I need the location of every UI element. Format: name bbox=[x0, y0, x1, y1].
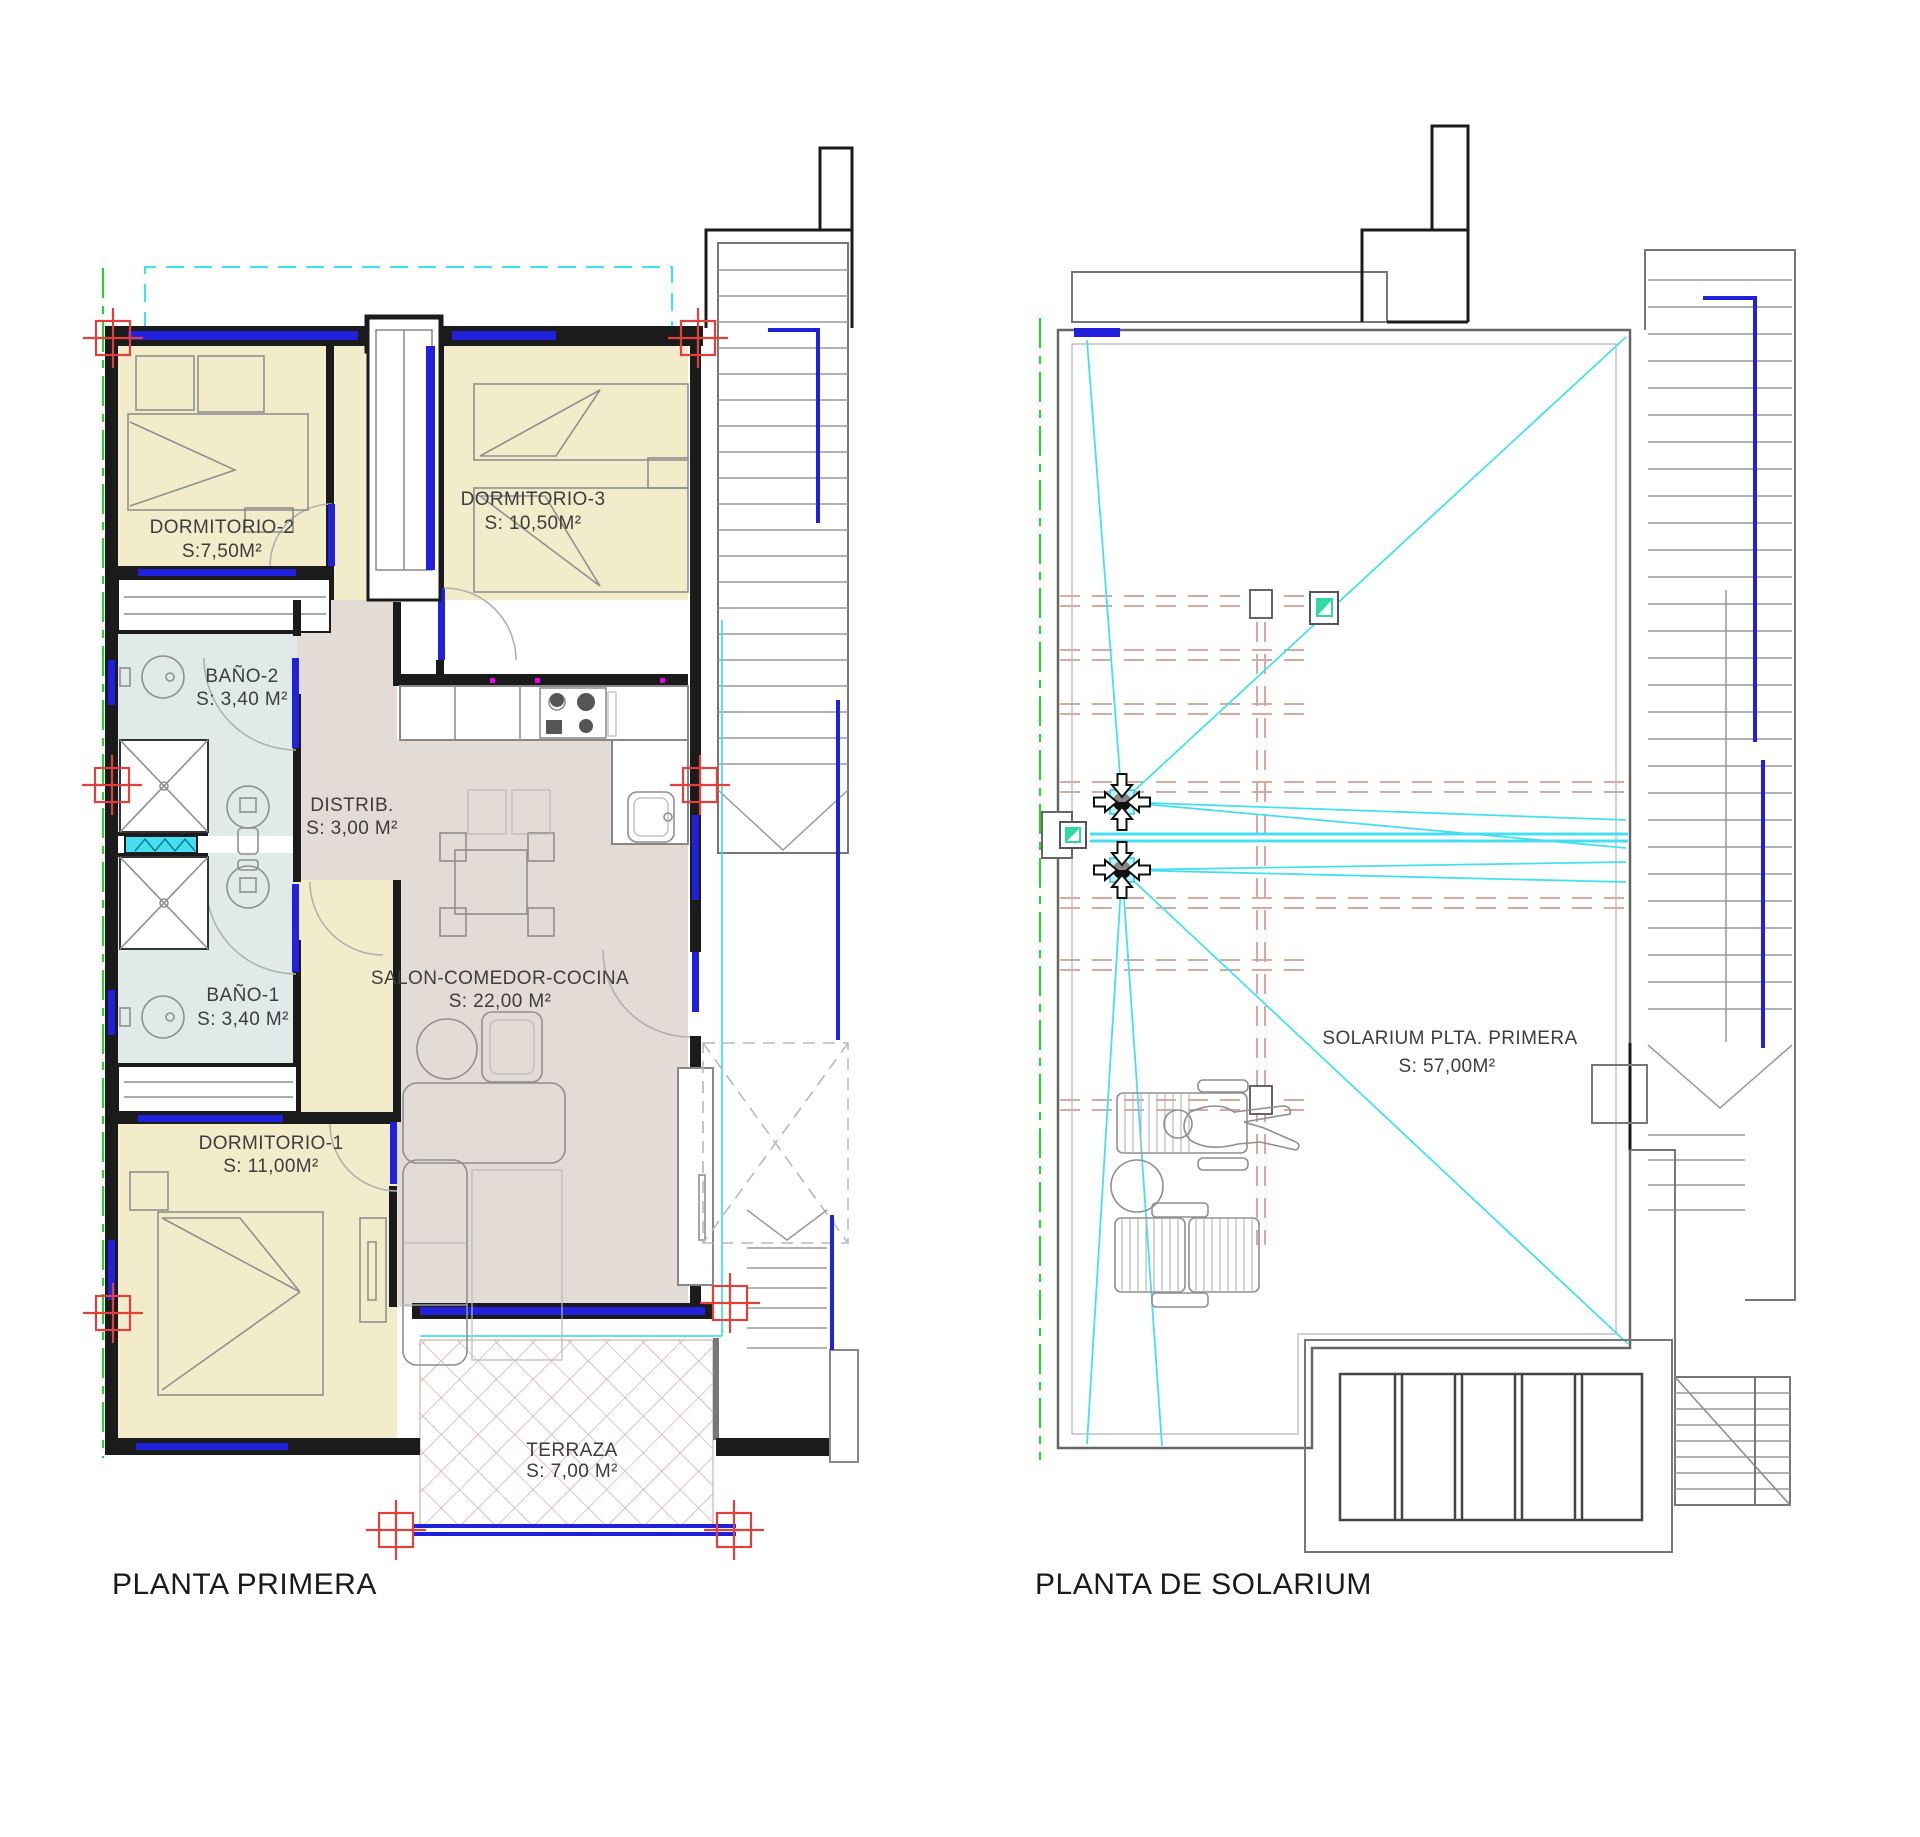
pergola-outline bbox=[1305, 1340, 1672, 1552]
room-label: DORMITORIO-2 bbox=[150, 517, 295, 538]
column-marker-icon bbox=[366, 1500, 426, 1560]
window-dorm1-bottom bbox=[136, 1443, 288, 1450]
plan-title: PLANTA DE SOLARIUM bbox=[1035, 1568, 1372, 1601]
window-dorm2 bbox=[138, 569, 296, 576]
shower-icon bbox=[120, 857, 208, 949]
passage-floor bbox=[297, 880, 397, 1122]
room-area: S: 57,00M² bbox=[1399, 1056, 1496, 1077]
wall-tick-magenta bbox=[535, 678, 540, 683]
wall-right-upper bbox=[690, 346, 701, 1046]
room-label: DISTRIB. bbox=[310, 795, 393, 816]
window-glass-block bbox=[125, 836, 197, 853]
terraza-paving bbox=[420, 1340, 713, 1526]
window-left-2 bbox=[108, 990, 115, 1035]
wall-step bbox=[1630, 1150, 1675, 1377]
window-left-1 bbox=[108, 660, 115, 705]
closet-dorm1 bbox=[118, 1066, 297, 1112]
room-label: DORMITORIO-3 bbox=[461, 489, 606, 510]
room-area: S: 11,00M² bbox=[223, 1156, 319, 1177]
wall-bottom-right bbox=[716, 1438, 830, 1456]
plan-title: PLANTA PRIMERA bbox=[112, 1568, 377, 1601]
wall-dorm3-left-2 bbox=[436, 660, 444, 676]
roof-edge-outline bbox=[1072, 272, 1387, 322]
stair-handrail bbox=[1703, 298, 1755, 742]
window-dorm1-top bbox=[138, 1115, 283, 1122]
stair-treads bbox=[1648, 280, 1792, 1042]
chimney-outline bbox=[1362, 126, 1468, 322]
stair-hidden-edge bbox=[703, 1043, 848, 1243]
window-right bbox=[692, 815, 699, 900]
staircase bbox=[703, 148, 852, 1350]
wardrobe-icon bbox=[366, 316, 442, 600]
wall-tick-magenta bbox=[660, 678, 665, 683]
room-area: S:7,50M² bbox=[182, 541, 262, 562]
room-area: S: 3,40 M² bbox=[196, 689, 288, 710]
staircase bbox=[1645, 250, 1795, 1300]
plan-planta-primera: DORMITORIO-2 S:7,50M² DORMITORIO-3 S: 10… bbox=[82, 148, 858, 1601]
terraza-edge-line-1 bbox=[412, 1524, 736, 1528]
plan-planta-solarium: SOLARIUM PLTA. PRIMERA S: 57,00M² PLANTA… bbox=[1035, 126, 1795, 1601]
door-leaf-bano2 bbox=[292, 658, 299, 748]
room-label: SALON-COMEDOR-COCINA bbox=[371, 968, 629, 989]
room-label: SOLARIUM PLTA. PRIMERA bbox=[1322, 1028, 1577, 1049]
staircase bbox=[1675, 1377, 1790, 1505]
wall-terraza-right bbox=[713, 1338, 719, 1440]
window-top-left bbox=[128, 331, 358, 340]
floorplan-canvas: DORMITORIO-2 S:7,50M² DORMITORIO-3 S: 10… bbox=[0, 0, 1920, 1837]
door-leaf-bano1 bbox=[292, 884, 299, 972]
room-label: DORMITORIO-1 bbox=[199, 1133, 344, 1154]
wall-bano2-top bbox=[118, 630, 297, 634]
room-label: BAÑO-2 bbox=[205, 665, 278, 687]
window-solarium-top bbox=[1074, 328, 1120, 337]
wall-pier bbox=[830, 1350, 858, 1462]
wall-kitchen-top bbox=[397, 674, 688, 686]
room-label: TERRAZA bbox=[526, 1440, 617, 1461]
solarium-deck bbox=[1058, 330, 1630, 1448]
wall-kitchen-left bbox=[393, 602, 401, 686]
beam-post bbox=[1250, 590, 1272, 618]
room-area: S: 3,40 M² bbox=[197, 1009, 289, 1030]
door-leaf-dorm1 bbox=[390, 1122, 397, 1184]
tv-unit-icon bbox=[678, 1068, 713, 1285]
wall-dorm1-right bbox=[389, 1186, 397, 1307]
wall-tick-magenta bbox=[490, 678, 495, 683]
stair-treads bbox=[718, 270, 848, 764]
vent-skylight-icon bbox=[1060, 822, 1086, 848]
room-area: S: 10,50M² bbox=[485, 513, 582, 534]
room-label: BAÑO-1 bbox=[206, 984, 279, 1006]
room-area: S: 22,00 M² bbox=[449, 991, 552, 1012]
wall-passage-right bbox=[393, 880, 401, 1122]
door-leaf-entry bbox=[692, 952, 699, 1012]
hall-floor bbox=[330, 346, 368, 600]
window-top-right bbox=[452, 331, 556, 340]
room-area: S: 7,00 M² bbox=[526, 1461, 618, 1482]
vent-skylight-icon bbox=[1310, 592, 1338, 624]
terraza-edge-line-2 bbox=[412, 1532, 736, 1536]
door-leaf-dorm2 bbox=[328, 504, 335, 566]
room-area: S: 3,00 M² bbox=[306, 818, 398, 839]
